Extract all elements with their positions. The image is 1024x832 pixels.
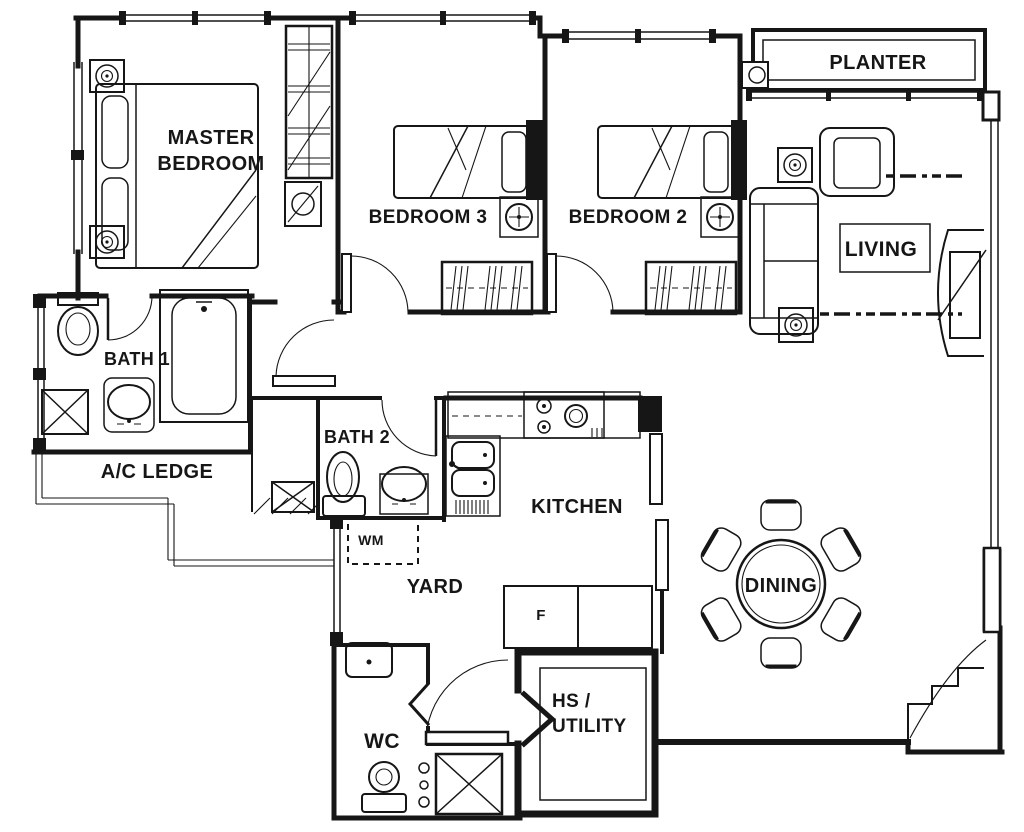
label-yard: YARD — [375, 574, 495, 600]
label-hs-utility: HS / UTILITY — [552, 690, 652, 739]
label-bedroom3: BEDROOM 3 — [348, 206, 508, 231]
dining-chair — [698, 595, 744, 645]
wardrobe — [286, 26, 332, 178]
dining-chair — [818, 595, 864, 645]
wardrobe — [646, 262, 736, 314]
label-master-bedroom: MASTER BEDROOM — [131, 125, 291, 177]
label-wm: WM — [341, 531, 401, 549]
label-bath2: BATH 2 — [297, 426, 417, 449]
dresser — [285, 182, 321, 226]
dining-chair — [761, 638, 801, 668]
single-bed — [598, 126, 736, 198]
label-living: LIVING — [811, 236, 951, 263]
wash-basin — [346, 643, 392, 677]
label-dining: DINING — [721, 573, 841, 599]
ceiling-speaker-icon — [779, 308, 813, 342]
ac-unit — [254, 482, 318, 514]
single-bed — [394, 126, 532, 198]
dining-chair — [818, 525, 864, 575]
ceiling-speaker-icon — [778, 148, 812, 182]
floorplan: MASTER BEDROOM BEDROOM 3 BEDROOM 2 PLANT… — [0, 0, 1024, 832]
wash-basin — [380, 467, 428, 514]
label-fridge: F — [521, 606, 561, 626]
toilet — [58, 293, 98, 355]
bath2-fixtures — [254, 452, 428, 516]
sofa — [750, 188, 818, 334]
ac-unit-recess — [742, 62, 768, 88]
ac-unit — [42, 390, 88, 434]
label-bedroom2: BEDROOM 2 — [548, 206, 708, 231]
wash-basin — [104, 378, 154, 432]
service-duct — [419, 754, 502, 814]
dining-chair — [761, 500, 801, 530]
label-bath1: BATH 1 — [77, 348, 197, 371]
dining-chair — [698, 525, 744, 575]
label-kitchen: KITCHEN — [497, 494, 657, 520]
label-planter: PLANTER — [798, 50, 958, 76]
label-wc: WC — [342, 728, 422, 755]
toilet — [362, 762, 406, 812]
wardrobe — [442, 262, 532, 314]
counter-cabinet — [578, 586, 652, 648]
label-ac-ledge: A/C LEDGE — [77, 459, 237, 485]
armchair — [820, 128, 894, 196]
toilet — [323, 452, 365, 516]
kitchen-sink — [446, 436, 500, 516]
